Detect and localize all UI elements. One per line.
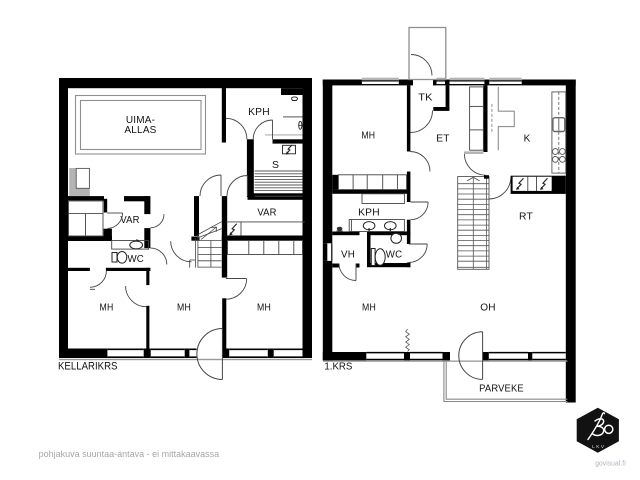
svg-text:MH: MH bbox=[362, 303, 376, 314]
svg-text:MH: MH bbox=[257, 303, 271, 314]
svg-text:VAR: VAR bbox=[120, 215, 139, 226]
svg-text:govisual.fi: govisual.fi bbox=[595, 458, 626, 467]
svg-text:KELLARIKRS: KELLARIKRS bbox=[58, 361, 118, 373]
svg-text:MH: MH bbox=[177, 303, 191, 314]
svg-text:ALLAS: ALLAS bbox=[124, 125, 156, 136]
svg-text:RT: RT bbox=[519, 212, 533, 223]
svg-text:1.KRS: 1.KRS bbox=[324, 361, 352, 372]
svg-text:MH: MH bbox=[361, 131, 375, 142]
svg-text:PARVEKE: PARVEKE bbox=[479, 384, 524, 395]
svg-text:ET: ET bbox=[436, 134, 450, 145]
svg-text:S: S bbox=[272, 160, 279, 171]
svg-text:MH: MH bbox=[100, 303, 114, 314]
svg-text:LKV: LKV bbox=[592, 444, 605, 449]
svg-text:WC: WC bbox=[127, 254, 144, 265]
svg-text:WC: WC bbox=[386, 249, 403, 260]
svg-text:K: K bbox=[524, 134, 531, 145]
svg-text:VAR: VAR bbox=[257, 208, 276, 219]
svg-text:TK: TK bbox=[418, 93, 433, 104]
svg-text:KPH: KPH bbox=[358, 208, 380, 219]
svg-text:pohjakuva suuntaa-antava - ei: pohjakuva suuntaa-antava - ei mittakaava… bbox=[39, 449, 220, 459]
svg-text:OH: OH bbox=[480, 303, 496, 314]
svg-text:VH: VH bbox=[341, 249, 355, 260]
svg-text:KPH: KPH bbox=[248, 107, 270, 118]
